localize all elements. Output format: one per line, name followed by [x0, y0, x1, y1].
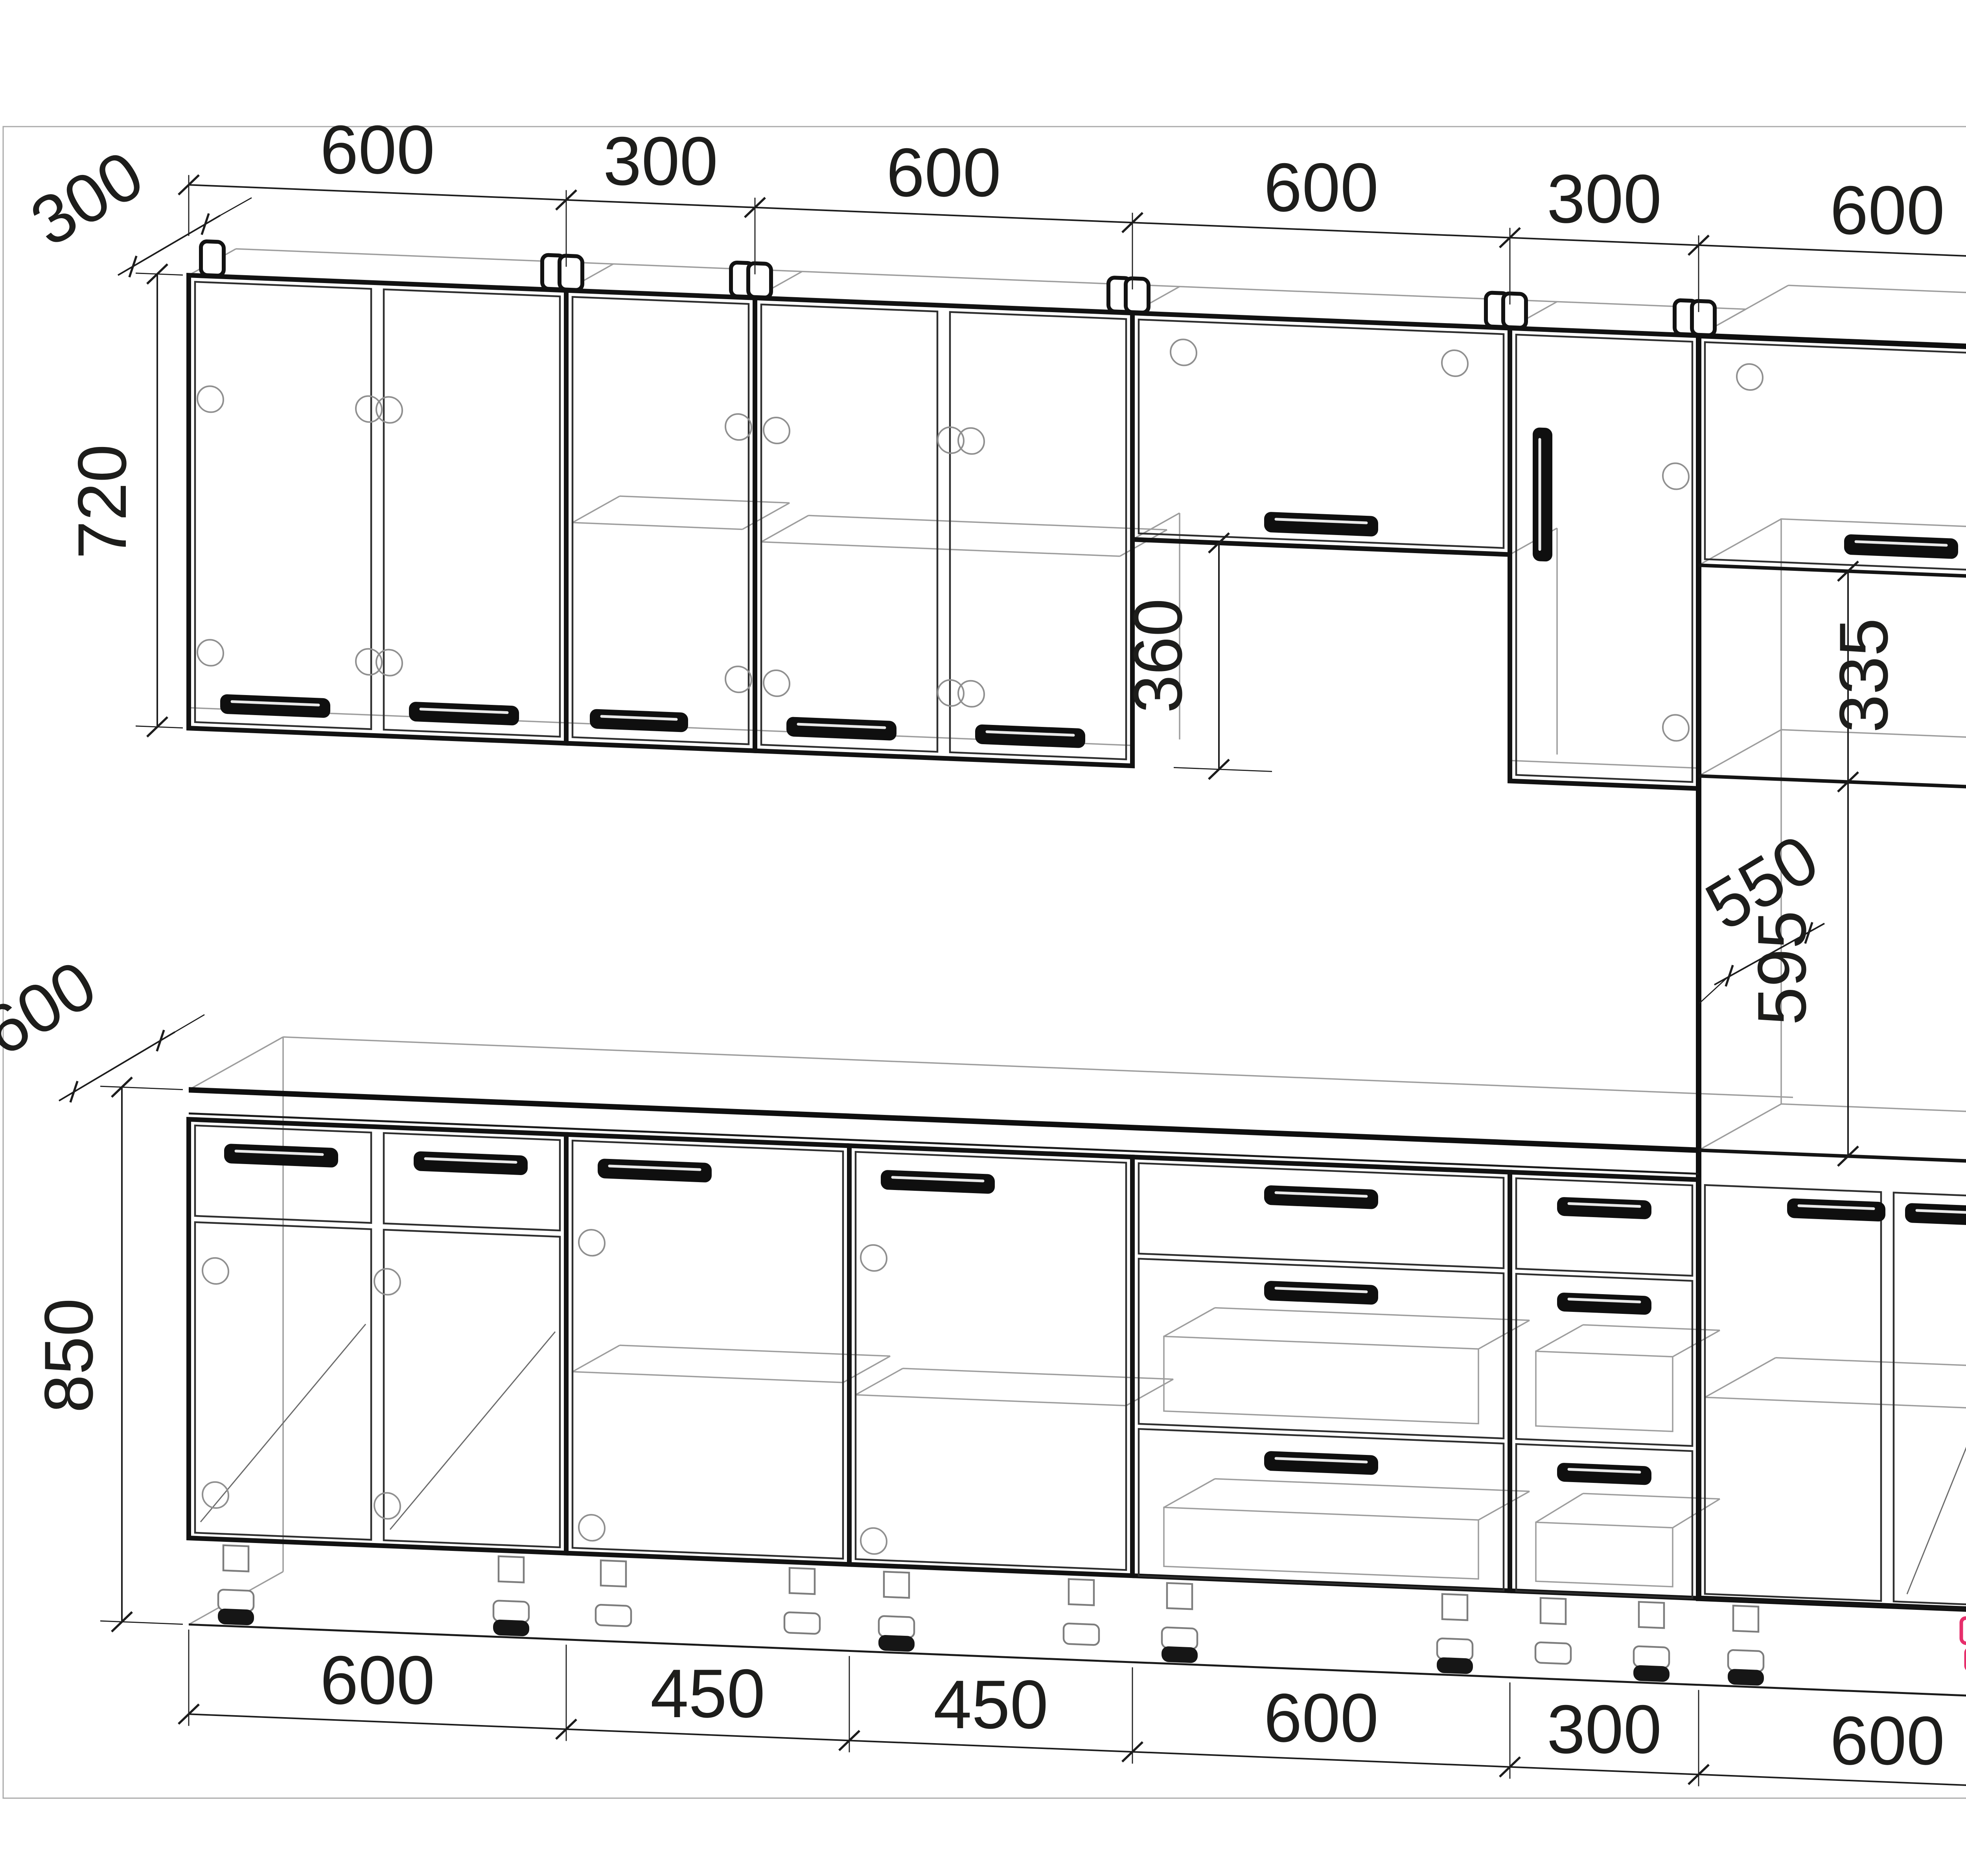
door: [384, 289, 560, 737]
dim-label-bottom-4: 600: [1264, 1680, 1379, 1756]
tall-unit-carcass: [1699, 336, 1966, 1613]
wireframe-wall-shelves: [189, 473, 1699, 768]
highlighted-leg: [1961, 1618, 1966, 1672]
wall-cabinet-600-1: [189, 275, 566, 743]
door: [856, 1152, 1126, 1570]
door: [1705, 1185, 1881, 1601]
drawing-frame: [3, 127, 1966, 1798]
dim-label-bottom-5: 300: [1547, 1691, 1662, 1768]
door: [572, 297, 749, 744]
flip-up-door: [1139, 320, 1504, 548]
dim-label-base-height: 850: [31, 1298, 107, 1413]
dim-label-bottom-2: 450: [650, 1655, 765, 1732]
dim-label-bottom-6: 600: [1830, 1703, 1945, 1779]
tick-marks: [112, 171, 1966, 1802]
wall-cabinet-600-2: [755, 298, 1132, 766]
drawer-front: [384, 1133, 560, 1230]
dim-label-bottom-3: 450: [933, 1666, 1048, 1743]
dimension-annotations: 600 300 600 600 300 600 600 450 450 600 …: [0, 112, 1966, 1779]
door: [195, 282, 371, 729]
dim-label-niche-height: 335: [1826, 618, 1902, 733]
dim-label-base-depth: 600: [0, 946, 109, 1071]
depth-tick-marks: [70, 213, 1966, 1102]
dim-label-hood-opening: 360: [1120, 598, 1197, 713]
drawer-front: [1516, 1178, 1692, 1276]
dim-label-top-4: 600: [1264, 149, 1379, 226]
dim-label-top-6: 600: [1830, 172, 1945, 249]
drawer-front: [1139, 1163, 1504, 1268]
base-cabinet-450-2: [849, 1146, 1132, 1576]
wireframe-niches: [1699, 516, 1966, 1169]
wall-cabinet-300-1: [566, 291, 755, 751]
door: [950, 312, 1126, 760]
drawing-sheet: 600 300 600 600 300 600 600 450 450 600 …: [0, 0, 1966, 1876]
kitchen-assembly-drawing: 600 300 600 600 300 600 600 450 450 600 …: [0, 0, 1966, 1876]
countertop-front-edge: [189, 1090, 1699, 1150]
base-cabinet-600-1: [189, 1119, 566, 1553]
door: [1894, 1193, 1966, 1609]
dim-label-wall-height: 720: [64, 444, 141, 559]
dimension-lines: [122, 182, 1966, 1791]
cabinet-geometry: [100, 171, 1966, 1806]
dim-label-top-5: 300: [1547, 161, 1662, 237]
door: [761, 304, 937, 752]
dim-label-top-1: 600: [320, 112, 435, 188]
base-cabinet-300-drawers: [1510, 1172, 1699, 1598]
dim-label-top-2: 300: [603, 123, 718, 200]
handle-highlights: [232, 387, 1966, 1487]
door: [384, 1230, 560, 1547]
mounting-hooks: [201, 241, 1715, 335]
depth-dimension-lines: [59, 215, 1966, 1101]
dim-label-top-3: 600: [886, 134, 1001, 211]
base-cabinet-600-drawers: [1132, 1157, 1510, 1591]
dim-label-bottom-1: 600: [320, 1642, 435, 1719]
dim-label-wall-depth: 300: [18, 136, 156, 261]
